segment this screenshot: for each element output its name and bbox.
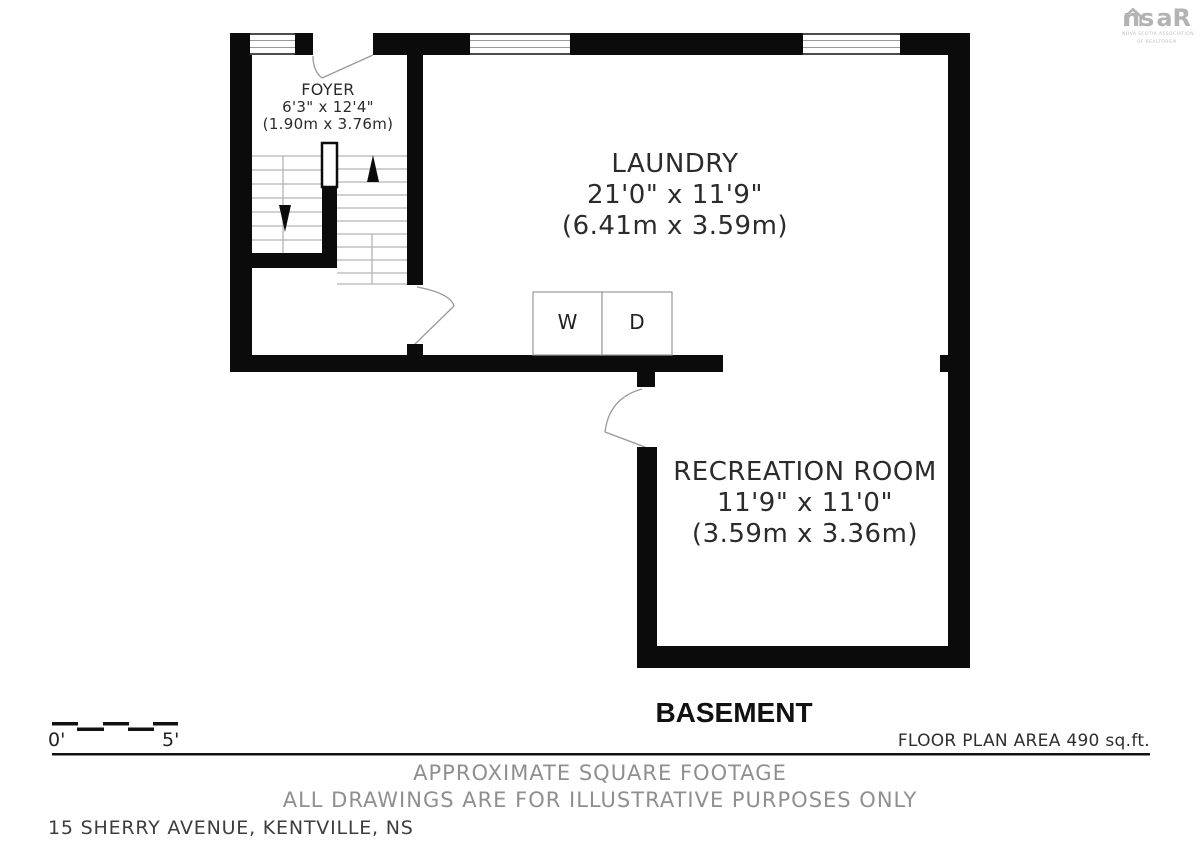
nsar-logo-tagline-2: OF REALTORS® (1122, 40, 1192, 46)
property-address: 15 SHERRY AVENUE, KENTVILLE, NS (48, 817, 414, 839)
nsar-logo-tagline-1: NOVA SCOTIA ASSOCIATION (1122, 32, 1192, 38)
disclaimer-line-1: APPROXIMATE SQUARE FOOTAGE (413, 761, 787, 785)
room-name: RECREATION ROOM (673, 457, 937, 488)
room-dimensions-metric: (3.59m x 3.36m) (673, 519, 937, 550)
room-name: FOYER (263, 81, 394, 99)
window-laundry-right (803, 33, 900, 55)
room-name: LAUNDRY (562, 149, 788, 180)
window-foyer (250, 33, 295, 55)
window-laundry-left (470, 33, 570, 55)
disclaimer-line-2: ALL DRAWINGS ARE FOR ILLUSTRATIVE PURPOS… (283, 788, 918, 812)
stairs-down-arrow-icon (279, 205, 291, 232)
scale-start-label: 0' (48, 729, 65, 751)
floor-plan-page: ns aR NOVA SCOTIA ASSOCIATION OF REALTOR… (0, 0, 1200, 848)
room-label-recreation: RECREATION ROOM 11'9" x 11'0" (3.59m x 3… (673, 457, 937, 550)
scale-bar-icon (52, 722, 178, 731)
nsar-logo: ns aR NOVA SCOTIA ASSOCIATION OF REALTOR… (1122, 6, 1192, 45)
floor-title: BASEMENT (655, 697, 812, 729)
floor-plan-area: FLOOR PLAN AREA 490 sq.ft. (898, 731, 1150, 751)
room-dimensions-metric: (6.41m x 3.59m) (562, 211, 788, 242)
room-label-laundry: LAUNDRY 21'0" x 11'9" (6.41m x 3.59m) (562, 149, 788, 242)
scale-end-label: 5' (162, 729, 179, 751)
room-dimensions-metric: (1.90m x 3.76m) (263, 116, 394, 134)
room-dimensions-imperial: 11'9" x 11'0" (673, 488, 937, 519)
room-dimensions-imperial: 6'3" x 12'4" (263, 99, 394, 117)
floor-plan-drawing (0, 0, 1200, 848)
washer-label: W (533, 292, 602, 352)
nsar-logo-text-right: aR (1156, 6, 1191, 30)
dryer-label: D (602, 292, 672, 352)
footer-divider-line (52, 753, 1150, 756)
stairs-newel-post (322, 143, 337, 187)
room-dimensions-imperial: 21'0" x 11'9" (562, 180, 788, 211)
room-label-foyer: FOYER 6'3" x 12'4" (1.90m x 3.76m) (263, 81, 394, 134)
